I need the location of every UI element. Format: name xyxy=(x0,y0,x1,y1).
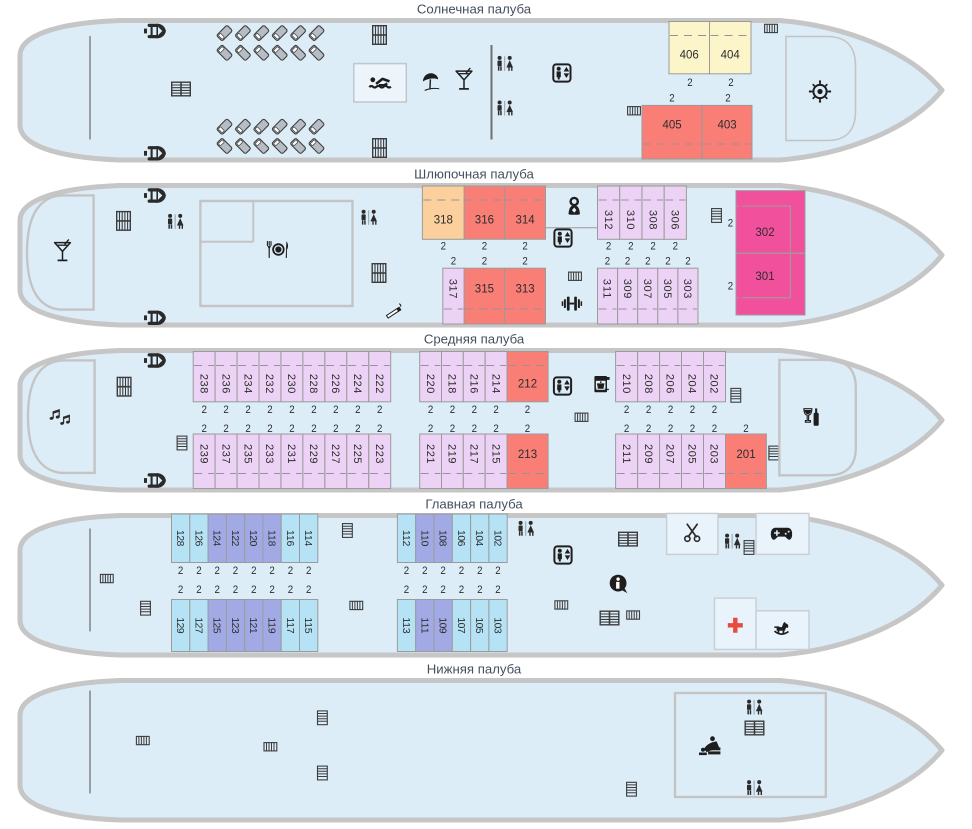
svg-text:2: 2 xyxy=(289,423,294,435)
svg-text:227: 227 xyxy=(329,444,341,464)
svg-text:404: 404 xyxy=(721,50,741,62)
svg-text:120: 120 xyxy=(247,530,258,547)
svg-text:224: 224 xyxy=(351,374,363,394)
svg-text:2: 2 xyxy=(215,565,220,577)
svg-text:305: 305 xyxy=(661,279,673,299)
svg-text:2: 2 xyxy=(525,423,530,435)
svg-text:2: 2 xyxy=(223,404,228,416)
svg-text:108: 108 xyxy=(436,530,447,547)
svg-text:2: 2 xyxy=(495,584,500,596)
svg-text:2: 2 xyxy=(196,565,201,577)
svg-text:2: 2 xyxy=(202,423,207,435)
svg-text:103: 103 xyxy=(491,617,502,634)
svg-text:311: 311 xyxy=(601,279,613,299)
svg-text:111: 111 xyxy=(418,617,429,634)
svg-text:123: 123 xyxy=(229,617,240,634)
svg-text:2: 2 xyxy=(306,584,311,596)
svg-text:Шлюпочная палуба: Шлюпочная палуба xyxy=(414,167,534,182)
svg-text:122: 122 xyxy=(229,530,240,547)
svg-text:2: 2 xyxy=(428,404,433,416)
svg-text:2: 2 xyxy=(712,423,717,435)
svg-text:239: 239 xyxy=(197,444,209,464)
svg-text:2: 2 xyxy=(245,404,250,416)
svg-text:231: 231 xyxy=(285,444,297,464)
svg-text:236: 236 xyxy=(219,374,231,394)
svg-text:206: 206 xyxy=(664,374,676,394)
svg-text:2: 2 xyxy=(267,423,272,435)
svg-text:213: 213 xyxy=(518,449,537,461)
svg-text:Средняя палуба: Средняя палуба xyxy=(424,332,525,347)
svg-text:2: 2 xyxy=(522,240,527,252)
svg-text:2: 2 xyxy=(251,565,256,577)
svg-text:2: 2 xyxy=(725,92,730,104)
svg-text:2: 2 xyxy=(606,240,611,252)
svg-text:2: 2 xyxy=(690,423,695,435)
svg-text:2: 2 xyxy=(441,240,446,252)
svg-text:306: 306 xyxy=(668,210,680,230)
svg-text:2: 2 xyxy=(728,217,733,229)
svg-text:220: 220 xyxy=(424,374,436,394)
svg-text:2: 2 xyxy=(625,255,630,267)
svg-text:2: 2 xyxy=(690,404,695,416)
svg-text:313: 313 xyxy=(516,284,535,296)
svg-text:233: 233 xyxy=(263,444,275,464)
svg-text:222: 222 xyxy=(373,374,385,394)
svg-text:2: 2 xyxy=(223,423,228,435)
svg-text:Солнечная палуба: Солнечная палуба xyxy=(417,2,532,17)
svg-text:115: 115 xyxy=(302,617,313,634)
svg-text:2: 2 xyxy=(450,423,455,435)
svg-text:117: 117 xyxy=(284,617,295,634)
svg-text:2: 2 xyxy=(646,423,651,435)
svg-text:124: 124 xyxy=(211,530,222,547)
svg-text:2: 2 xyxy=(333,404,338,416)
svg-text:128: 128 xyxy=(174,530,185,547)
svg-text:2: 2 xyxy=(288,565,293,577)
svg-text:309: 309 xyxy=(621,279,633,299)
svg-text:2: 2 xyxy=(624,423,629,435)
svg-text:109: 109 xyxy=(436,617,447,634)
svg-text:318: 318 xyxy=(434,215,453,227)
svg-text:217: 217 xyxy=(467,444,479,464)
svg-text:2: 2 xyxy=(624,404,629,416)
svg-text:215: 215 xyxy=(489,444,501,464)
svg-text:307: 307 xyxy=(641,279,653,299)
svg-text:2: 2 xyxy=(668,404,673,416)
svg-text:2: 2 xyxy=(333,423,338,435)
svg-text:2: 2 xyxy=(196,584,201,596)
svg-text:2: 2 xyxy=(404,584,409,596)
svg-text:314: 314 xyxy=(516,215,536,227)
svg-text:121: 121 xyxy=(247,617,258,634)
svg-text:301: 301 xyxy=(755,271,774,283)
svg-text:2: 2 xyxy=(668,423,673,435)
svg-text:112: 112 xyxy=(400,530,411,547)
svg-text:208: 208 xyxy=(642,374,654,394)
svg-text:118: 118 xyxy=(265,530,276,547)
svg-text:226: 226 xyxy=(329,374,341,394)
svg-text:110: 110 xyxy=(418,530,429,547)
svg-text:2: 2 xyxy=(673,240,678,252)
svg-text:406: 406 xyxy=(680,50,699,62)
svg-text:2: 2 xyxy=(459,584,464,596)
svg-text:234: 234 xyxy=(241,374,253,394)
svg-text:2: 2 xyxy=(525,404,530,416)
svg-text:2: 2 xyxy=(269,565,274,577)
svg-text:2: 2 xyxy=(422,565,427,577)
svg-text:2: 2 xyxy=(650,240,655,252)
svg-text:203: 203 xyxy=(708,444,720,464)
svg-text:237: 237 xyxy=(219,444,231,464)
svg-text:214: 214 xyxy=(489,374,501,394)
svg-text:207: 207 xyxy=(664,444,676,464)
svg-text:229: 229 xyxy=(307,444,319,464)
svg-text:228: 228 xyxy=(307,374,319,394)
svg-text:221: 221 xyxy=(424,444,436,464)
svg-text:2: 2 xyxy=(178,584,183,596)
svg-text:2: 2 xyxy=(355,404,360,416)
svg-text:2: 2 xyxy=(202,404,207,416)
svg-text:201: 201 xyxy=(736,449,755,461)
svg-text:212: 212 xyxy=(518,379,537,391)
svg-text:2: 2 xyxy=(477,584,482,596)
svg-text:102: 102 xyxy=(491,530,502,547)
svg-text:2: 2 xyxy=(289,404,294,416)
svg-text:Главная палуба: Главная палуба xyxy=(425,497,523,512)
svg-text:2: 2 xyxy=(646,404,651,416)
svg-text:2: 2 xyxy=(267,404,272,416)
svg-text:308: 308 xyxy=(646,210,658,230)
svg-text:316: 316 xyxy=(475,215,494,227)
svg-text:2: 2 xyxy=(687,77,692,89)
svg-text:2: 2 xyxy=(605,255,610,267)
svg-text:204: 204 xyxy=(686,374,698,394)
svg-text:2: 2 xyxy=(472,404,477,416)
svg-text:202: 202 xyxy=(708,374,720,394)
svg-text:405: 405 xyxy=(663,120,682,132)
svg-text:104: 104 xyxy=(473,530,484,547)
svg-text:312: 312 xyxy=(602,210,614,230)
svg-text:126: 126 xyxy=(192,530,203,547)
svg-text:232: 232 xyxy=(263,374,275,394)
svg-text:2: 2 xyxy=(482,255,487,267)
svg-text:403: 403 xyxy=(718,120,737,132)
svg-text:2: 2 xyxy=(355,423,360,435)
svg-text:2: 2 xyxy=(288,584,293,596)
svg-text:2: 2 xyxy=(743,423,748,435)
svg-text:216: 216 xyxy=(467,374,479,394)
svg-text:2: 2 xyxy=(728,280,733,292)
svg-text:2: 2 xyxy=(306,565,311,577)
svg-text:225: 225 xyxy=(351,444,363,464)
svg-text:Нижняя палуба: Нижняя палуба xyxy=(427,662,522,677)
svg-text:125: 125 xyxy=(211,617,222,634)
svg-text:303: 303 xyxy=(681,279,693,299)
svg-text:205: 205 xyxy=(686,444,698,464)
svg-text:2: 2 xyxy=(233,584,238,596)
svg-text:2: 2 xyxy=(451,255,456,267)
svg-text:2: 2 xyxy=(495,565,500,577)
svg-text:2: 2 xyxy=(472,423,477,435)
svg-text:2: 2 xyxy=(645,255,650,267)
svg-text:2: 2 xyxy=(422,584,427,596)
svg-text:230: 230 xyxy=(285,374,297,394)
svg-text:2: 2 xyxy=(493,404,498,416)
svg-text:119: 119 xyxy=(265,617,276,634)
svg-text:2: 2 xyxy=(669,92,674,104)
svg-text:2: 2 xyxy=(728,77,733,89)
svg-text:235: 235 xyxy=(241,444,253,464)
svg-text:223: 223 xyxy=(373,444,385,464)
svg-text:211: 211 xyxy=(620,444,632,464)
svg-text:302: 302 xyxy=(755,227,774,239)
svg-text:2: 2 xyxy=(665,255,670,267)
svg-text:2: 2 xyxy=(685,255,690,267)
svg-text:210: 210 xyxy=(620,374,632,394)
svg-text:315: 315 xyxy=(475,284,494,296)
svg-text:2: 2 xyxy=(712,404,717,416)
svg-text:106: 106 xyxy=(455,530,466,547)
svg-text:2: 2 xyxy=(404,565,409,577)
svg-text:2: 2 xyxy=(269,584,274,596)
svg-text:2: 2 xyxy=(493,423,498,435)
svg-text:107: 107 xyxy=(455,617,466,634)
svg-text:238: 238 xyxy=(197,374,209,394)
svg-text:2: 2 xyxy=(251,584,256,596)
svg-text:105: 105 xyxy=(473,617,484,634)
svg-text:310: 310 xyxy=(624,210,636,230)
svg-text:129: 129 xyxy=(174,617,185,634)
svg-text:127: 127 xyxy=(192,617,203,634)
svg-text:2: 2 xyxy=(459,565,464,577)
svg-text:2: 2 xyxy=(233,565,238,577)
svg-text:2: 2 xyxy=(522,255,527,267)
svg-text:2: 2 xyxy=(450,404,455,416)
svg-text:2: 2 xyxy=(440,584,445,596)
svg-text:2: 2 xyxy=(377,423,382,435)
svg-text:2: 2 xyxy=(311,423,316,435)
svg-text:113: 113 xyxy=(400,617,411,634)
svg-text:2: 2 xyxy=(440,565,445,577)
svg-text:2: 2 xyxy=(482,240,487,252)
svg-text:116: 116 xyxy=(284,530,295,547)
svg-text:2: 2 xyxy=(311,404,316,416)
svg-text:114: 114 xyxy=(302,530,313,547)
svg-text:2: 2 xyxy=(215,584,220,596)
svg-text:2: 2 xyxy=(245,423,250,435)
svg-text:219: 219 xyxy=(446,444,458,464)
svg-text:2: 2 xyxy=(628,240,633,252)
svg-text:209: 209 xyxy=(642,444,654,464)
svg-text:218: 218 xyxy=(446,374,458,394)
svg-text:317: 317 xyxy=(447,279,459,299)
svg-text:2: 2 xyxy=(428,423,433,435)
svg-text:2: 2 xyxy=(377,404,382,416)
svg-text:2: 2 xyxy=(178,565,183,577)
svg-text:2: 2 xyxy=(477,565,482,577)
